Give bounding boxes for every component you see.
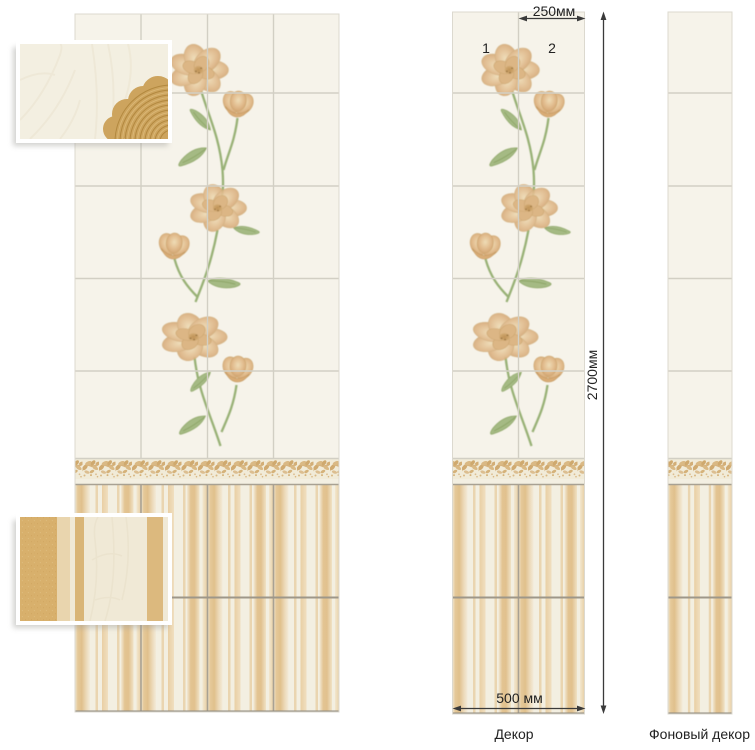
svg-text:2700мм: 2700мм (584, 350, 600, 400)
svg-text:250мм: 250мм (533, 3, 576, 19)
svg-text:1: 1 (482, 40, 490, 56)
svg-text:500 мм: 500 мм (496, 690, 543, 706)
svg-text:Фоновый декор: Фоновый декор (649, 726, 750, 742)
svg-text:2: 2 (548, 40, 556, 56)
svg-text:Декор: Декор (494, 726, 533, 742)
